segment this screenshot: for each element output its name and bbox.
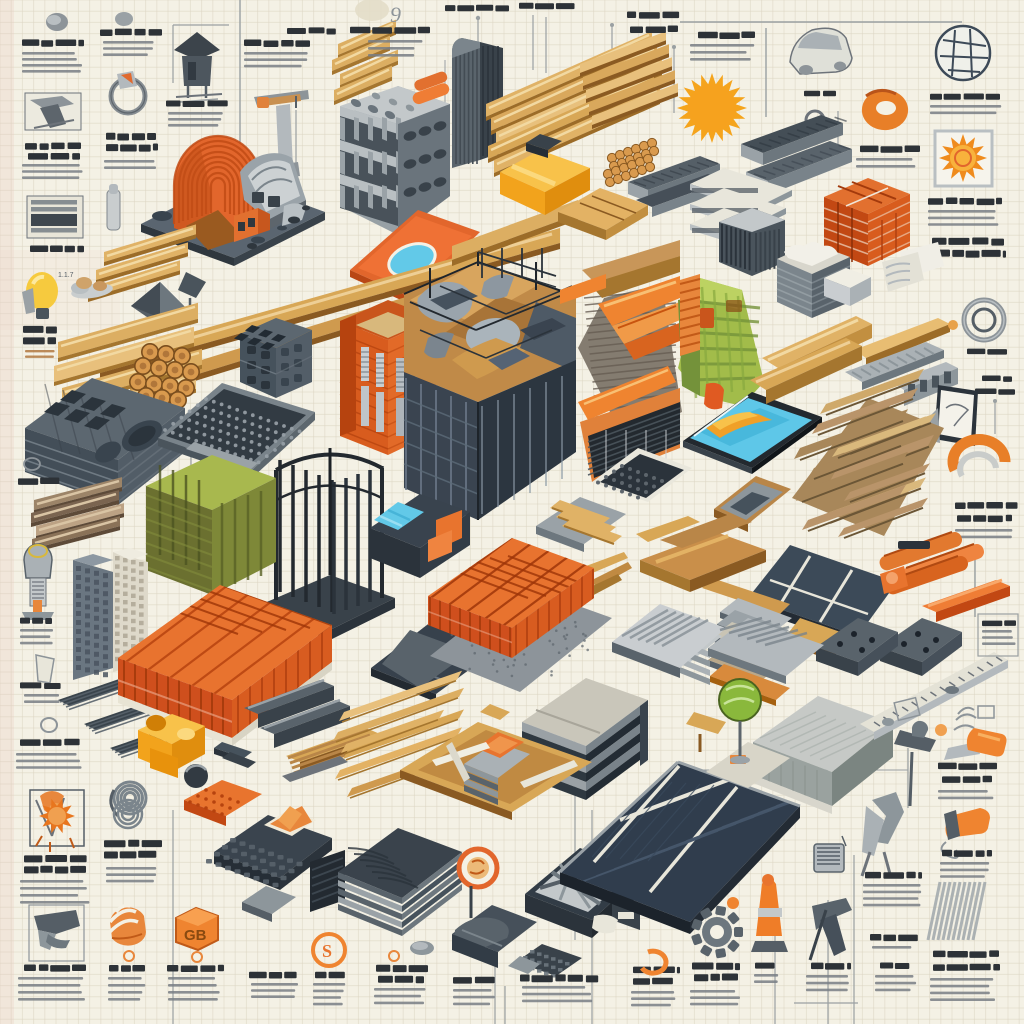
svg-text:9: 9 xyxy=(390,2,401,27)
svg-text:1.1.7: 1.1.7 xyxy=(58,272,74,279)
svg-text:GB: GB xyxy=(184,927,207,944)
svg-text:S: S xyxy=(322,941,332,961)
